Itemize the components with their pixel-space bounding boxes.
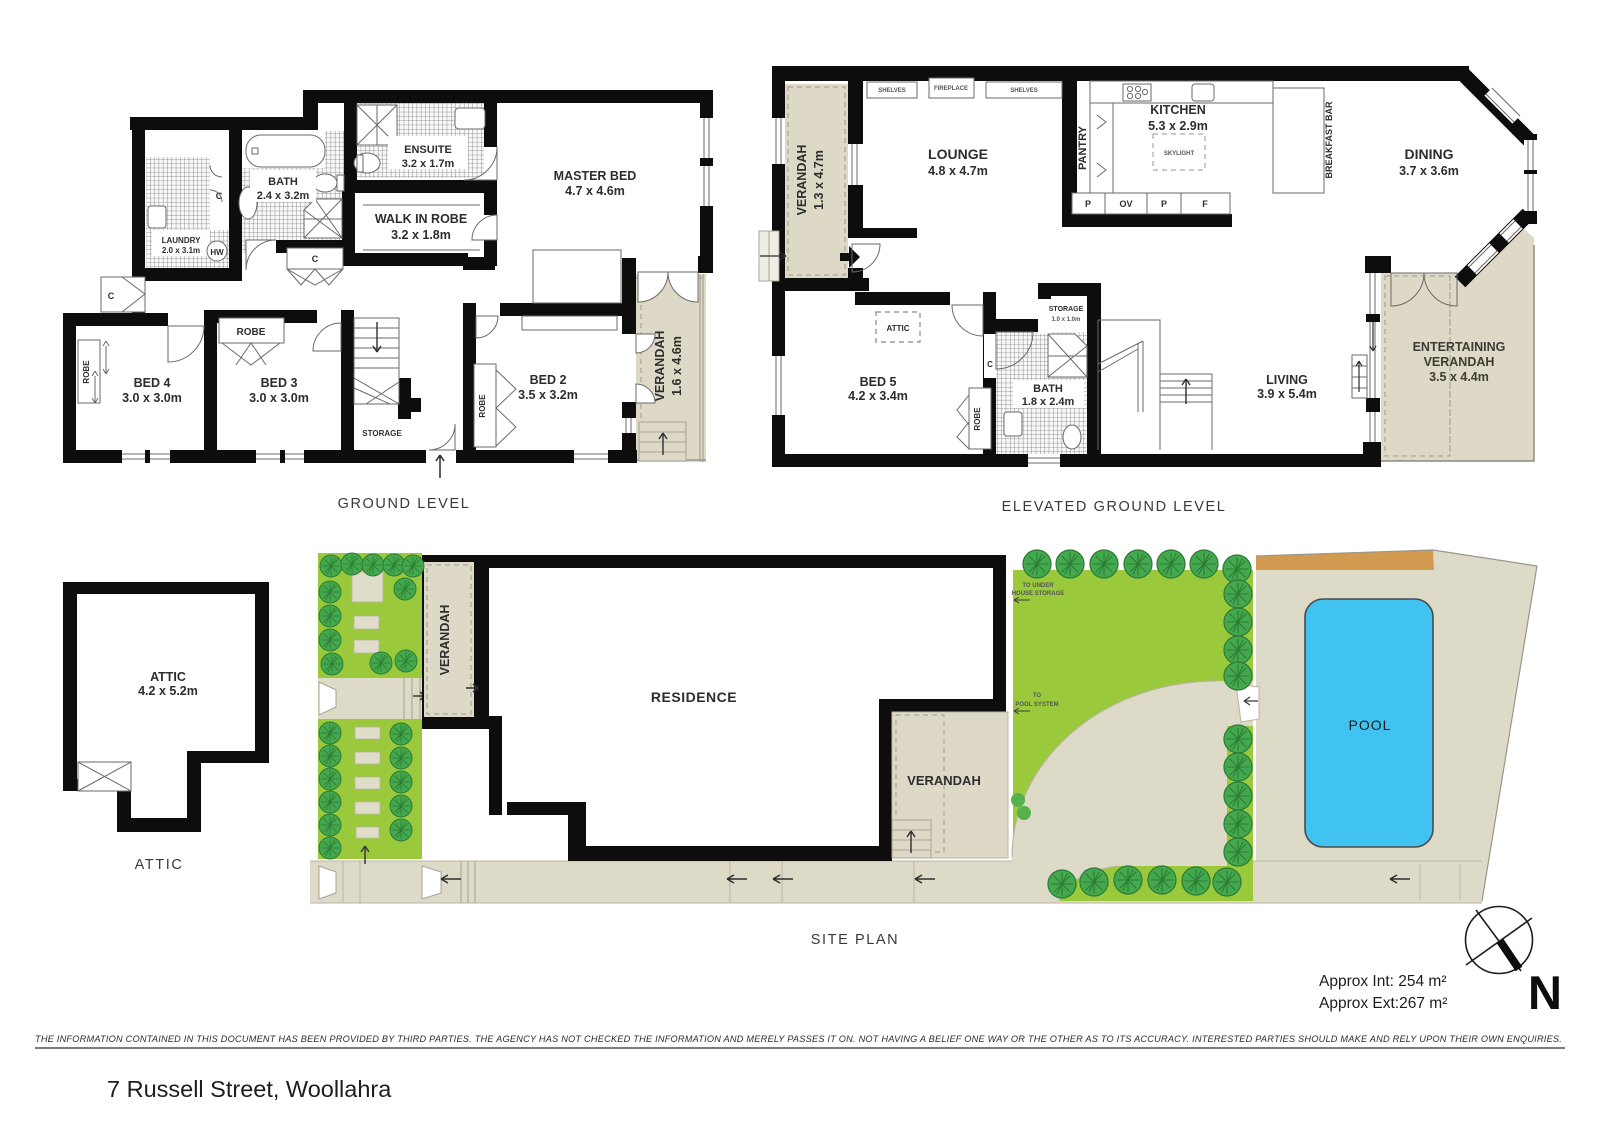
svg-text:7 Russell Street, Woollahra: 7 Russell Street, Woollahra [107,1076,392,1102]
svg-text:VERANDAH: VERANDAH [653,331,667,402]
svg-text:ATTIC: ATTIC [135,857,184,873]
svg-text:DINING: DINING [1405,146,1454,162]
svg-text:BATH: BATH [268,176,298,188]
svg-text:ATTIC: ATTIC [150,670,186,684]
svg-text:WALK IN ROBE: WALK IN ROBE [375,212,467,226]
svg-text:VERANDAH: VERANDAH [907,773,981,788]
svg-text:C: C [987,360,993,369]
svg-text:4.8 x 4.7m: 4.8 x 4.7m [928,164,988,178]
svg-text:3.7 x 3.6m: 3.7 x 3.6m [1399,164,1459,178]
svg-text:Approx Ext:267 m²: Approx Ext:267 m² [1319,995,1447,1012]
svg-text:ROBE: ROBE [973,407,982,431]
svg-text:SITE PLAN: SITE PLAN [811,932,900,948]
svg-text:C: C [108,291,115,301]
svg-text:3.0 x 3.0m: 3.0 x 3.0m [122,391,182,405]
svg-text:BATH: BATH [1033,383,1063,395]
svg-text:3.0 x 3.0m: 3.0 x 3.0m [249,391,309,405]
svg-text:LAUNDRY: LAUNDRY [162,236,201,245]
svg-text:TO: TO [1033,693,1042,699]
svg-text:KITCHEN: KITCHEN [1150,103,1206,117]
svg-text:C: C [312,254,319,264]
svg-text:2.4 x 3.2m: 2.4 x 3.2m [257,190,310,202]
svg-text:THE INFORMATION CONTAINED IN T: THE INFORMATION CONTAINED IN THIS DOCUME… [35,1034,1562,1044]
svg-text:ROBE: ROBE [237,327,266,338]
svg-text:HW: HW [210,248,224,257]
svg-text:BED 5: BED 5 [860,375,897,389]
svg-text:BREAKFAST BAR: BREAKFAST BAR [1324,101,1334,179]
svg-text:GROUND LEVEL: GROUND LEVEL [338,496,471,512]
svg-text:ENTERTAINING: ENTERTAINING [1413,340,1506,354]
svg-text:LOUNGE: LOUNGE [928,146,988,162]
svg-text:HOUSE STORAGE: HOUSE STORAGE [1012,591,1065,597]
svg-text:ROBE: ROBE [478,394,487,418]
svg-text:TO UNDER: TO UNDER [1022,583,1054,589]
svg-text:BED 2: BED 2 [530,373,567,387]
svg-text:4.7 x 4.6m: 4.7 x 4.6m [565,184,625,198]
svg-text:SHELVES: SHELVES [1010,88,1038,94]
svg-text:MASTER BED: MASTER BED [554,169,637,183]
svg-text:VERANDAH: VERANDAH [1424,355,1495,369]
svg-text:3.2 x 1.8m: 3.2 x 1.8m [391,228,451,242]
svg-text:ROBE: ROBE [82,360,91,384]
svg-text:3.2 x 1.7m: 3.2 x 1.7m [402,158,455,170]
svg-text:3.5 x 4.4m: 3.5 x 4.4m [1429,370,1489,384]
svg-text:VERANDAH: VERANDAH [795,145,809,216]
svg-text:P: P [1085,199,1091,209]
svg-text:OV: OV [1119,199,1132,209]
svg-text:N: N [1528,966,1562,1019]
svg-text:SHELVES: SHELVES [878,88,906,94]
svg-text:STORAGE: STORAGE [1049,306,1084,313]
svg-text:3.9 x 5.4m: 3.9 x 5.4m [1257,387,1317,401]
svg-text:F: F [1202,199,1208,209]
svg-text:ELEVATED GROUND LEVEL: ELEVATED GROUND LEVEL [1002,499,1227,515]
svg-text:4.2 x 3.4m: 4.2 x 3.4m [848,389,908,403]
svg-text:3.5 x 3.2m: 3.5 x 3.2m [518,388,578,402]
svg-text:5.3 x 2.9m: 5.3 x 2.9m [1148,119,1208,133]
svg-text:BED 3: BED 3 [261,376,298,390]
svg-text:Approx Int: 254 m²: Approx Int: 254 m² [1319,973,1447,990]
svg-text:SKYLIGHT: SKYLIGHT [1164,151,1195,157]
svg-text:PANTRY: PANTRY [1077,125,1089,170]
svg-text:BED 4: BED 4 [134,376,171,390]
svg-text:POOL SYSTEM: POOL SYSTEM [1015,702,1058,708]
svg-text:1.0 x 1.0m: 1.0 x 1.0m [1052,317,1081,323]
svg-text:POOL: POOL [1349,717,1392,733]
svg-text:RESIDENCE: RESIDENCE [651,689,737,705]
svg-text:STORAGE: STORAGE [362,429,402,438]
svg-text:FIREPLACE: FIREPLACE [934,86,968,92]
svg-text:1.6 x 4.6m: 1.6 x 4.6m [670,336,684,396]
svg-text:1.3 x 4.7m: 1.3 x 4.7m [812,150,826,210]
svg-text:1.8 x 2.4m: 1.8 x 2.4m [1022,396,1075,408]
svg-text:4.2 x 5.2m: 4.2 x 5.2m [138,684,198,698]
svg-text:2.0 x 3.1m: 2.0 x 3.1m [162,246,200,255]
svg-text:P: P [1161,199,1167,209]
svg-text:LIVING: LIVING [1266,373,1308,387]
svg-text:VERANDAH: VERANDAH [438,605,452,676]
svg-text:ATTIC: ATTIC [887,324,910,333]
svg-text:ENSUITE: ENSUITE [404,144,452,156]
